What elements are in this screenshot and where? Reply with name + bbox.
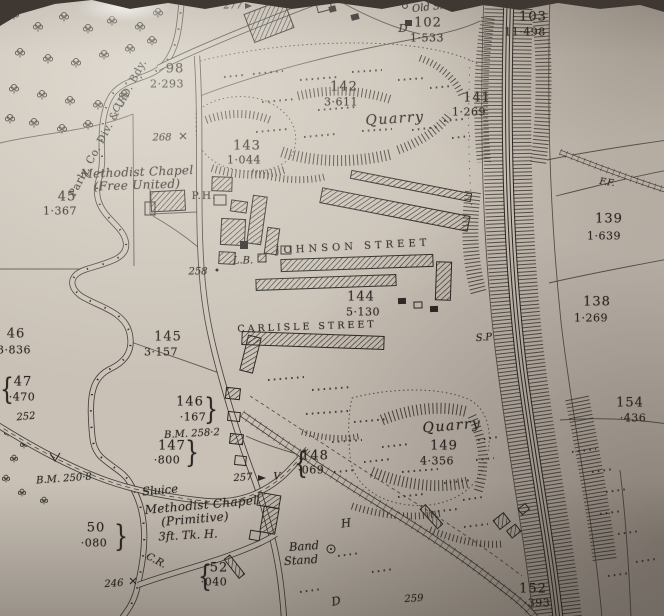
parcel-45-number: 45 <box>58 190 77 205</box>
parcel-50-number: 50 <box>87 521 106 536</box>
band-stand-line2: Stand <box>283 552 318 568</box>
spot-246: 246 <box>104 578 124 590</box>
parcel-145-area: 3·157 <box>144 346 178 359</box>
parcel-141-number: 141 <box>463 91 491 106</box>
spot-258: 258 <box>188 267 207 278</box>
parcel-149-area: 4·356 <box>420 455 454 468</box>
spot-257: 257 <box>233 472 253 484</box>
johnson-street-label: JOHNSON STREET <box>275 237 430 256</box>
road-letter-h: H <box>340 515 352 530</box>
spot-268: 268 <box>152 133 171 144</box>
parcel-47-number: 47 <box>14 375 33 390</box>
signal-post-label: S.P <box>475 332 492 344</box>
parcel-103-area: 11·498 <box>504 26 546 39</box>
parcel-147-number: 147 <box>158 439 186 454</box>
parcel-46-number: 46 <box>7 327 26 342</box>
fence-label-ff: F.F. <box>599 177 616 189</box>
parcel-47-area: ·470 <box>9 391 36 404</box>
public-house-label: P.H. <box>192 190 217 202</box>
sluice-label: Sluice <box>142 481 179 498</box>
spot-259: 259 <box>404 593 424 605</box>
parcel-138-number: 138 <box>583 295 611 310</box>
parcel-138-area: 1·269 <box>574 312 608 325</box>
parcel-98-number: 98 <box>166 62 185 77</box>
parcel-45-area: 1·367 <box>43 205 77 218</box>
parcel-144-number: 144 <box>347 290 375 305</box>
old-shaft-label: Old Shaft <box>412 0 461 15</box>
parcel-149-number: 149 <box>430 439 458 454</box>
parcel-146-number: 146 <box>176 395 204 410</box>
parcel-103-number: 103 <box>519 10 547 25</box>
parcel-142-area: 3·611 <box>324 96 358 109</box>
quarry-south-label: Quarry <box>422 415 482 436</box>
spot-252: 252 <box>16 411 36 424</box>
letter-box-label: L.B. <box>233 256 253 267</box>
spot-277: 277 <box>223 1 242 12</box>
parcel-52-area: ·040 <box>201 576 228 589</box>
road-label-cr-south: C.R. <box>144 551 168 571</box>
parcel-148-area: ·069 <box>298 464 325 477</box>
parcel-52-number: 52 <box>210 561 229 576</box>
parcel-147-brace: } <box>185 435 199 470</box>
parcel-154-area: ·436 <box>620 412 647 425</box>
parcel-141-area: 1·269 <box>452 106 486 119</box>
parcel-102-area: 1·533 <box>410 32 444 45</box>
parcel-146-area: ·167 <box>180 411 207 424</box>
quarry-north-label: Quarry <box>365 109 425 129</box>
parcel-139-number: 139 <box>595 212 623 227</box>
parcel-154-number: 154 <box>616 396 644 411</box>
road-letter-d: D <box>330 593 342 609</box>
parcel-102-number: 102 <box>414 16 442 31</box>
parcel-147-area: ·800 <box>154 454 181 467</box>
parcel-152-area: ·393 <box>524 597 551 610</box>
parcel-142-number: 142 <box>330 80 358 95</box>
parcel-50-area: ·080 <box>81 537 108 550</box>
parcel-143-area: 1·044 <box>227 154 261 167</box>
parcel-144-area: 5·130 <box>346 306 380 319</box>
parcel-146-brace: } <box>204 392 218 427</box>
parcel-152-number: 152 <box>519 582 547 597</box>
road-label-cr-north: C.R. <box>110 91 131 115</box>
label-layer: Parly. Co. Div. & U.D. Bdy.C.R.982·29327… <box>0 0 664 616</box>
benchmark-250-8: B.M. 250·8 <box>36 472 92 487</box>
parcel-letter-d: D <box>398 21 407 35</box>
parcel-145-number: 145 <box>154 330 182 345</box>
parcel-139-area: 1·639 <box>587 230 621 243</box>
map-photo: Parly. Co. Div. & U.D. Bdy.C.R.982·29327… <box>0 0 664 616</box>
parcel-143-number: 143 <box>233 139 261 154</box>
parcel-46-area: 3·836 <box>0 344 31 357</box>
road-letter-v: V <box>273 472 280 483</box>
trough-label: 3ft. Tk. H. <box>158 526 218 543</box>
parcel-148-number: 148 <box>301 449 329 464</box>
parcel-50-brace: } <box>114 519 128 554</box>
parcel-98-area: 2·293 <box>150 78 184 91</box>
methodist-chapel-free-united-line2: (Free United) <box>93 176 180 193</box>
carlisle-street-label: CARLISLE STREET <box>237 319 377 335</box>
